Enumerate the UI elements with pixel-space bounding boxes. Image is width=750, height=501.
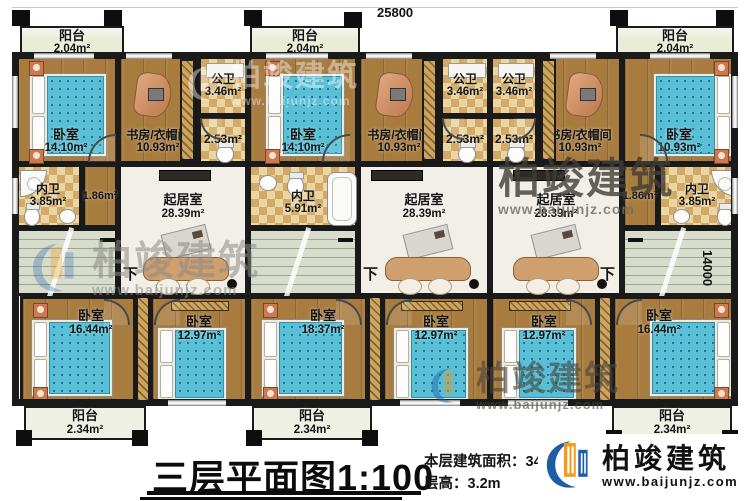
- wardrobe-strip: [136, 296, 150, 402]
- pillar: [716, 10, 734, 26]
- stair-down-label: 下: [600, 263, 615, 284]
- pillar: [246, 430, 262, 446]
- stair-arrow: [100, 238, 115, 242]
- floorplan-page: { "dimensions": { "top": "25800", "right…: [0, 0, 750, 501]
- balcony-u2-bottom: 阳台2.34m²: [252, 406, 372, 440]
- pillar: [610, 10, 628, 26]
- hall-u1: 1.86m²: [82, 164, 118, 228]
- window: [732, 178, 738, 214]
- wardrobe-strip: [598, 296, 612, 402]
- brand-name: 柏竣建筑: [602, 443, 730, 474]
- wardrobe-strip: [180, 59, 195, 161]
- bathroom-u3-gongwei: 公卫3.46m²: [490, 56, 538, 116]
- window: [126, 53, 172, 59]
- window: [650, 53, 710, 59]
- bathroom-u1-gongwei: 公卫3.46m²: [198, 56, 248, 116]
- wardrobe-strip: [368, 296, 382, 402]
- stair-down-label: 下: [123, 263, 138, 284]
- title-block: 三层平面图1:100 本层建筑面积：343.55m² 层高：3.2m 柏竣建筑 …: [0, 446, 750, 501]
- area-label: 本层建筑面积：: [424, 454, 526, 470]
- dimension-line-top: [12, 7, 738, 8]
- floor-plan: 25800 14000 阳台2.04m² 阳台2.04m² 阳台2.04m² 卧…: [0, 0, 750, 501]
- floor-height-label: 层高：: [424, 476, 468, 492]
- brand-url: www.baijunjz.com: [602, 474, 738, 489]
- window: [732, 76, 738, 128]
- floor-height-value: 3.2m: [468, 476, 501, 492]
- dimension-right: 14000: [700, 250, 715, 286]
- window: [12, 76, 18, 128]
- window: [168, 400, 226, 406]
- pillar: [104, 10, 122, 26]
- brand-logo-icon: [542, 436, 596, 499]
- wardrobe-strip: [541, 59, 556, 161]
- wardrobe-strip: [422, 59, 437, 161]
- stair-arrow: [628, 238, 643, 242]
- pillar: [12, 10, 30, 26]
- pillar: [132, 430, 148, 446]
- window: [12, 178, 18, 214]
- window: [400, 400, 460, 406]
- pillar: [344, 12, 362, 28]
- pillar: [244, 10, 262, 26]
- window: [266, 53, 328, 59]
- window: [550, 53, 596, 59]
- bathroom-u1-neiwei: 内卫3.85m²: [14, 164, 82, 228]
- bathroom-u3-neiwei: 内卫3.85m²: [658, 164, 736, 228]
- window: [34, 53, 94, 59]
- bathroom-u2-neiwei: 内卫5.91m²: [248, 164, 358, 228]
- title-underline: [140, 497, 402, 500]
- bathroom-u2-gongwei: 公卫3.46m²: [440, 56, 490, 116]
- window: [366, 53, 412, 59]
- balcony-u1-bottom: 阳台2.34m²: [24, 406, 146, 440]
- stair-down-label: 下: [363, 263, 378, 284]
- pillar: [362, 430, 378, 446]
- brand-logo: 柏竣建筑 www.baijunjz.com: [538, 434, 742, 501]
- pillar: [16, 430, 32, 446]
- hall-u3: 1.86m²: [622, 164, 658, 228]
- dimension-top: 25800: [377, 5, 413, 20]
- window: [508, 400, 568, 406]
- stair-arrow: [338, 238, 353, 242]
- title-underline: [147, 491, 421, 495]
